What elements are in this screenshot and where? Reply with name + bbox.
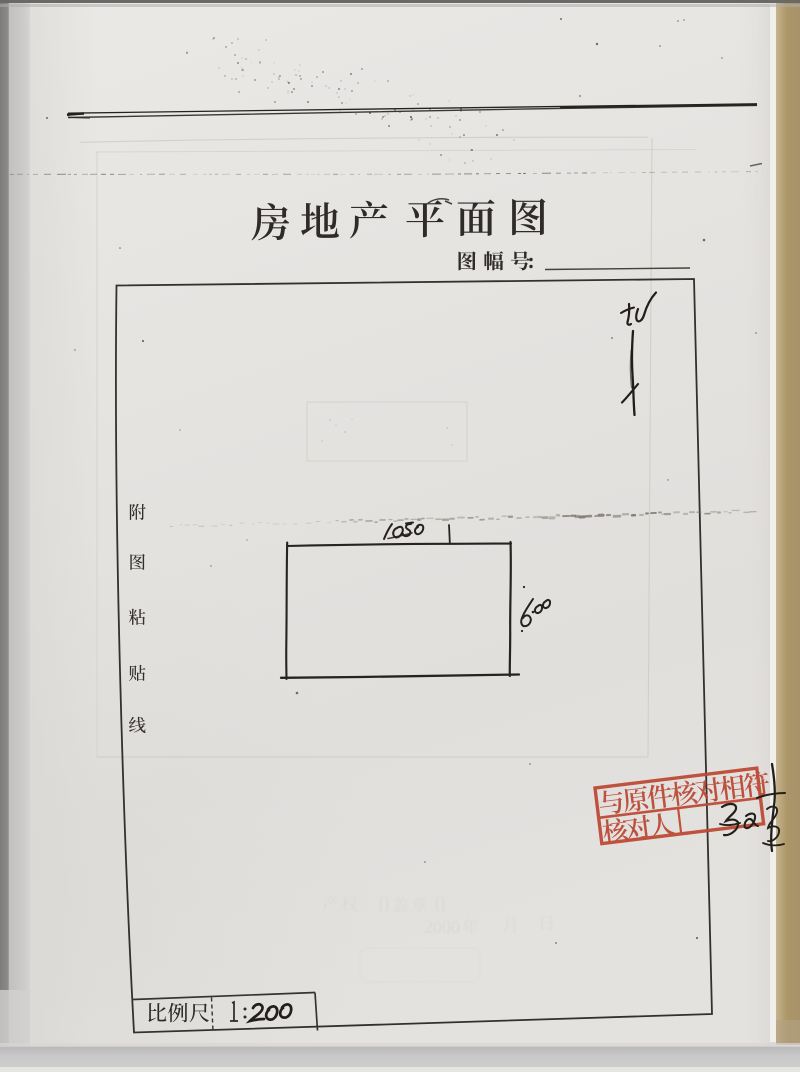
svg-text:2000: 2000 (424, 917, 460, 937)
